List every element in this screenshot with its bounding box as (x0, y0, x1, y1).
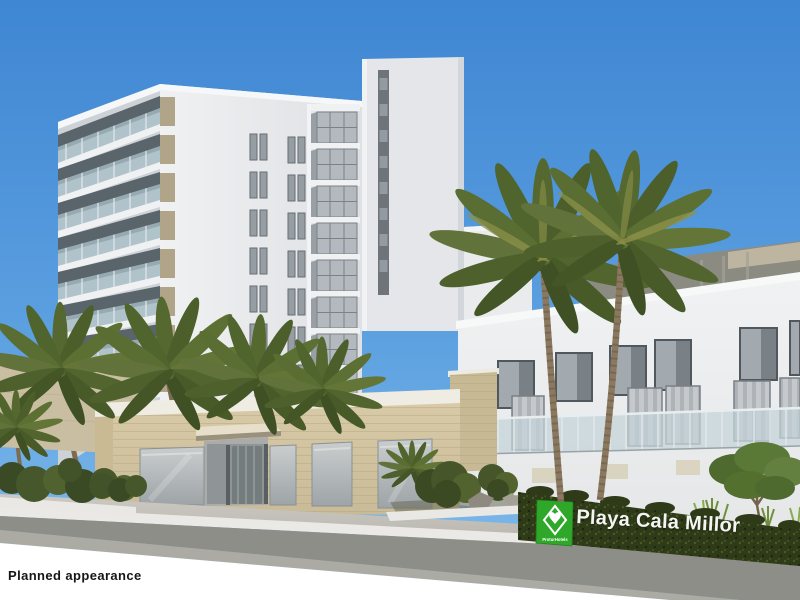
revolving-door (232, 446, 262, 504)
caption-text: Planned appearance (8, 568, 142, 583)
hotel-brand-sign: ProturHotels (536, 500, 573, 546)
architectural-rendering: ProturHotels Playa Cala Millor Planned a… (0, 0, 800, 600)
rendering-canvas: ProturHotels (0, 0, 800, 600)
entrance-recess (204, 437, 268, 506)
protur-logo-text: ProturHotels (542, 537, 568, 542)
